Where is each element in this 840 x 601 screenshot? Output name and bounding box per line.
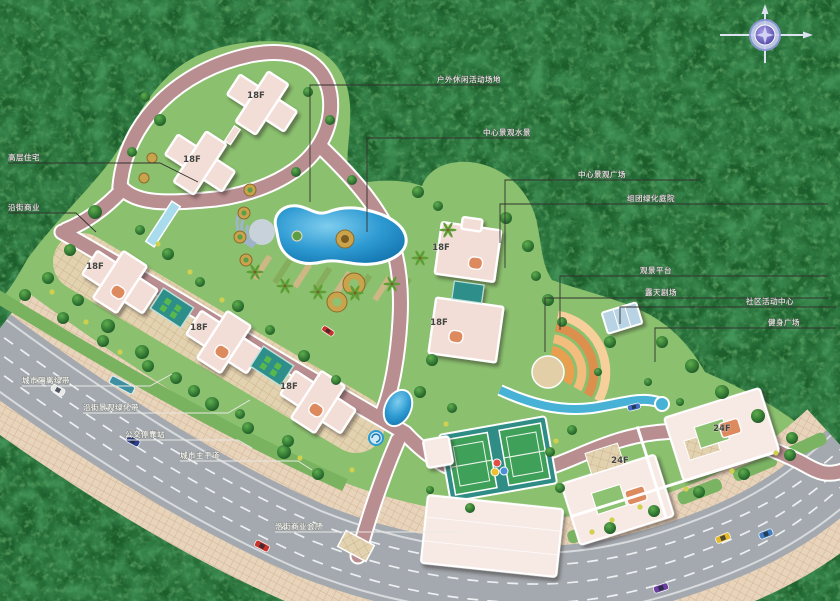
- tree: [205, 397, 219, 411]
- tree: [786, 432, 798, 444]
- tree: [738, 468, 750, 480]
- shrub: [187, 269, 192, 274]
- shrub: [117, 349, 122, 354]
- floor-tag: 18F: [183, 155, 201, 165]
- court-clubhouse: [423, 436, 453, 468]
- tree: [277, 445, 291, 459]
- site-plan-rendering: 户外休闲活动场地 中心景观水景 中心景观广场 组团绿化庭院 观景平台 露天剧场 …: [0, 0, 840, 601]
- floor-tag: 24F: [713, 424, 731, 434]
- shrub: [683, 486, 688, 491]
- shrub: [349, 467, 354, 472]
- tree: [195, 277, 205, 287]
- tree: [545, 447, 555, 457]
- tree: [265, 325, 275, 335]
- tree: [426, 486, 434, 494]
- tree: [232, 300, 244, 312]
- tree: [154, 114, 166, 126]
- annotation-label: 城市主干道: [180, 450, 220, 460]
- master-plan-canvas: 户外休闲活动场地 中心景观水景 中心景观广场 组团绿化庭院 观景平台 露天剧场 …: [0, 0, 840, 601]
- annotation-label: 健身广场: [768, 317, 800, 327]
- tree: [97, 335, 109, 347]
- tree: [542, 294, 554, 306]
- tree: [604, 522, 616, 534]
- tree: [88, 205, 102, 219]
- annotation-label: 沿街商业会所: [275, 521, 323, 531]
- tree: [557, 317, 567, 327]
- shrub: [773, 450, 778, 455]
- annotation-label: 沿街景观绿化带: [83, 402, 139, 412]
- tree: [57, 312, 69, 324]
- annotation-label: 观景平台: [640, 265, 672, 275]
- tree: [242, 422, 254, 434]
- tree: [19, 289, 31, 301]
- tree: [412, 186, 424, 198]
- tree: [135, 345, 149, 359]
- tree: [331, 375, 341, 385]
- tree: [555, 483, 565, 493]
- shrub: [637, 504, 642, 509]
- tree: [188, 385, 200, 397]
- annotation-label: 中心景观广场: [578, 169, 626, 179]
- tree: [142, 360, 154, 372]
- pool-island: [292, 231, 302, 241]
- street-retail-clubhouse-building: [421, 495, 563, 577]
- tree: [414, 386, 426, 398]
- floor-tag: 18F: [190, 323, 208, 333]
- tree: [465, 503, 475, 513]
- annotation-label: 沿街商业: [8, 202, 40, 212]
- annotation-label: 城市隔离绿带: [22, 375, 70, 385]
- tree: [567, 425, 577, 435]
- tree: [235, 409, 245, 419]
- tree: [693, 486, 705, 498]
- water-slide: [369, 431, 383, 445]
- tree: [291, 167, 301, 177]
- tree: [531, 271, 541, 281]
- tree: [685, 359, 699, 373]
- tree: [135, 225, 145, 235]
- tree: [751, 409, 765, 423]
- shrub: [443, 421, 448, 426]
- tree: [447, 403, 457, 413]
- tree: [298, 350, 310, 362]
- annotation-label: 高层住宅: [8, 152, 40, 162]
- shrub: [83, 319, 88, 324]
- tree: [604, 336, 616, 348]
- floor-tag: 18F: [280, 382, 298, 392]
- annotation-label: 组团绿化庭院: [627, 193, 675, 203]
- floor-tag: 18F: [432, 243, 450, 253]
- shrub: [553, 438, 558, 443]
- tree: [72, 294, 84, 306]
- tree: [303, 87, 313, 97]
- shrub: [297, 455, 302, 460]
- tree: [676, 398, 684, 406]
- tree: [594, 368, 602, 376]
- annotation-label: 公交停靠站: [125, 429, 165, 439]
- shrub: [49, 289, 54, 294]
- tree: [426, 354, 438, 366]
- tree: [64, 244, 76, 256]
- shrub: [589, 529, 594, 534]
- annotation-label: 露天剧场: [645, 287, 677, 297]
- tree: [42, 272, 54, 284]
- tree: [715, 385, 729, 399]
- shrub: [729, 468, 734, 473]
- floor-tag: 18F: [86, 262, 104, 272]
- floor-tag: 18F: [247, 91, 265, 101]
- tree: [522, 240, 534, 252]
- shrub: [609, 517, 614, 522]
- shrub: [219, 297, 224, 302]
- tree: [325, 115, 335, 125]
- floor-tag: 24F: [611, 456, 629, 466]
- tree: [648, 505, 660, 517]
- tree: [282, 435, 294, 447]
- annotation-label: 社区活动中心: [745, 296, 794, 306]
- floor-tag: 18F: [430, 318, 448, 328]
- annotation-label: 中心景观水景: [483, 127, 531, 137]
- tree: [312, 468, 324, 480]
- tree: [127, 147, 137, 157]
- tree: [347, 175, 357, 185]
- tree: [433, 201, 443, 211]
- tree: [140, 92, 150, 102]
- annotation-label: 户外休闲活动场地: [437, 74, 501, 84]
- tree: [656, 336, 668, 348]
- tree: [101, 319, 115, 333]
- tree: [162, 248, 174, 260]
- shrub: [155, 241, 160, 246]
- tree: [500, 212, 512, 224]
- tree: [784, 449, 796, 461]
- tree: [644, 378, 652, 386]
